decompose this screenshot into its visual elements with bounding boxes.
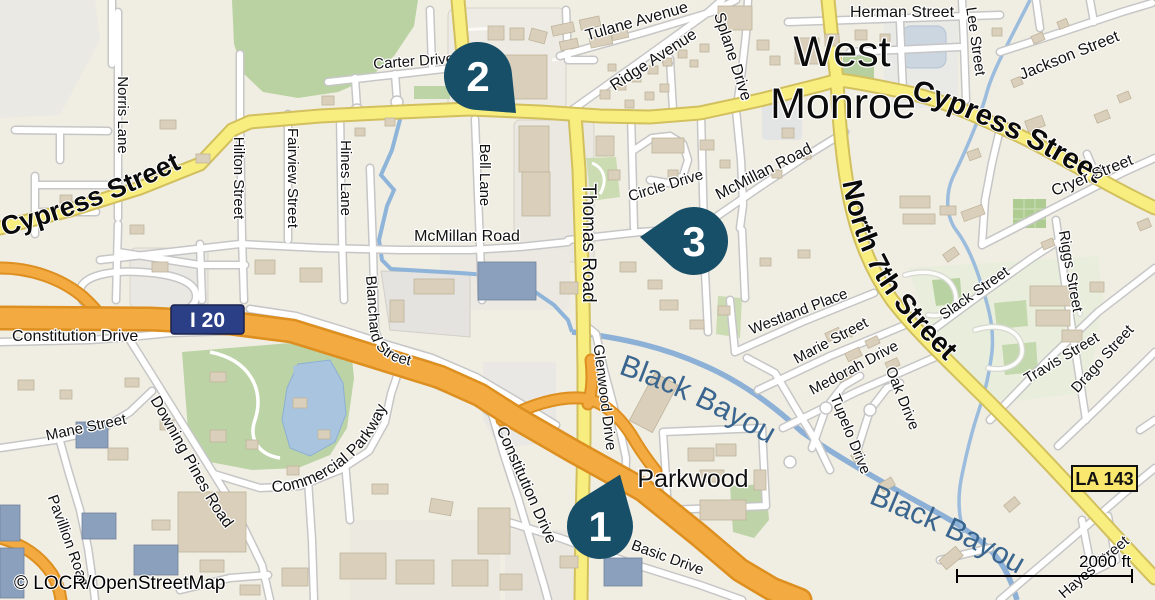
svg-text:West: West: [793, 28, 890, 76]
svg-text:Parkwood: Parkwood: [637, 465, 748, 493]
svg-text:Fairview Street: Fairview Street: [284, 128, 301, 229]
svg-text:1: 1: [588, 503, 611, 550]
svg-text:I 20: I 20: [190, 309, 225, 332]
svg-text:© LOCR/OpenStreetMap: © LOCR/OpenStreetMap: [14, 573, 225, 594]
svg-text:Hines Lane: Hines Lane: [337, 140, 354, 216]
svg-text:Thomas Road: Thomas Road: [578, 183, 599, 302]
svg-text:2000 ft: 2000 ft: [1079, 552, 1131, 571]
svg-text:LA 143: LA 143: [1075, 469, 1133, 489]
svg-text:McMillan Road: McMillan Road: [414, 228, 520, 245]
svg-text:3: 3: [682, 218, 705, 265]
svg-text:Constitution Drive: Constitution Drive: [12, 328, 138, 345]
svg-text:Monroe: Monroe: [770, 80, 916, 128]
svg-text:Herman Street: Herman Street: [850, 4, 955, 21]
svg-text:Bell Lane: Bell Lane: [476, 144, 493, 207]
svg-text:2: 2: [466, 53, 489, 100]
svg-text:Norris Lane: Norris Lane: [114, 76, 131, 154]
svg-text:Hilton Street: Hilton Street: [230, 137, 247, 220]
